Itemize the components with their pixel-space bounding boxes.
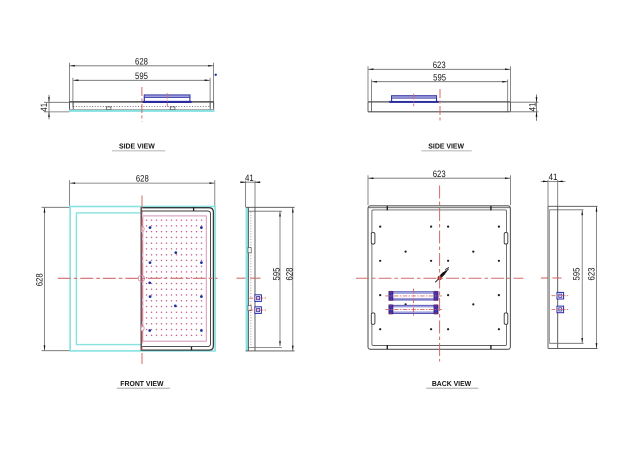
svg-text:BACK VIEW: BACK VIEW <box>432 379 471 388</box>
svg-text:41: 41 <box>245 173 254 183</box>
svg-text:623: 623 <box>586 268 596 281</box>
svg-text:628: 628 <box>135 56 148 66</box>
svg-text:623: 623 <box>433 60 446 70</box>
svg-text:595: 595 <box>272 268 282 281</box>
svg-text:SIDE VIEW: SIDE VIEW <box>428 141 464 150</box>
svg-text:595: 595 <box>135 71 148 81</box>
svg-text:595: 595 <box>571 268 581 281</box>
svg-text:FRONT VIEW: FRONT VIEW <box>120 379 163 388</box>
svg-text:SIDE VIEW: SIDE VIEW <box>119 141 155 150</box>
svg-text:628: 628 <box>136 174 149 184</box>
svg-text:623: 623 <box>433 169 446 179</box>
svg-text:41: 41 <box>549 172 558 182</box>
svg-text:41: 41 <box>527 103 537 112</box>
svg-text:595: 595 <box>433 72 446 82</box>
svg-text:628: 628 <box>35 273 45 286</box>
svg-text:41: 41 <box>39 103 49 112</box>
svg-text:628: 628 <box>284 268 294 281</box>
